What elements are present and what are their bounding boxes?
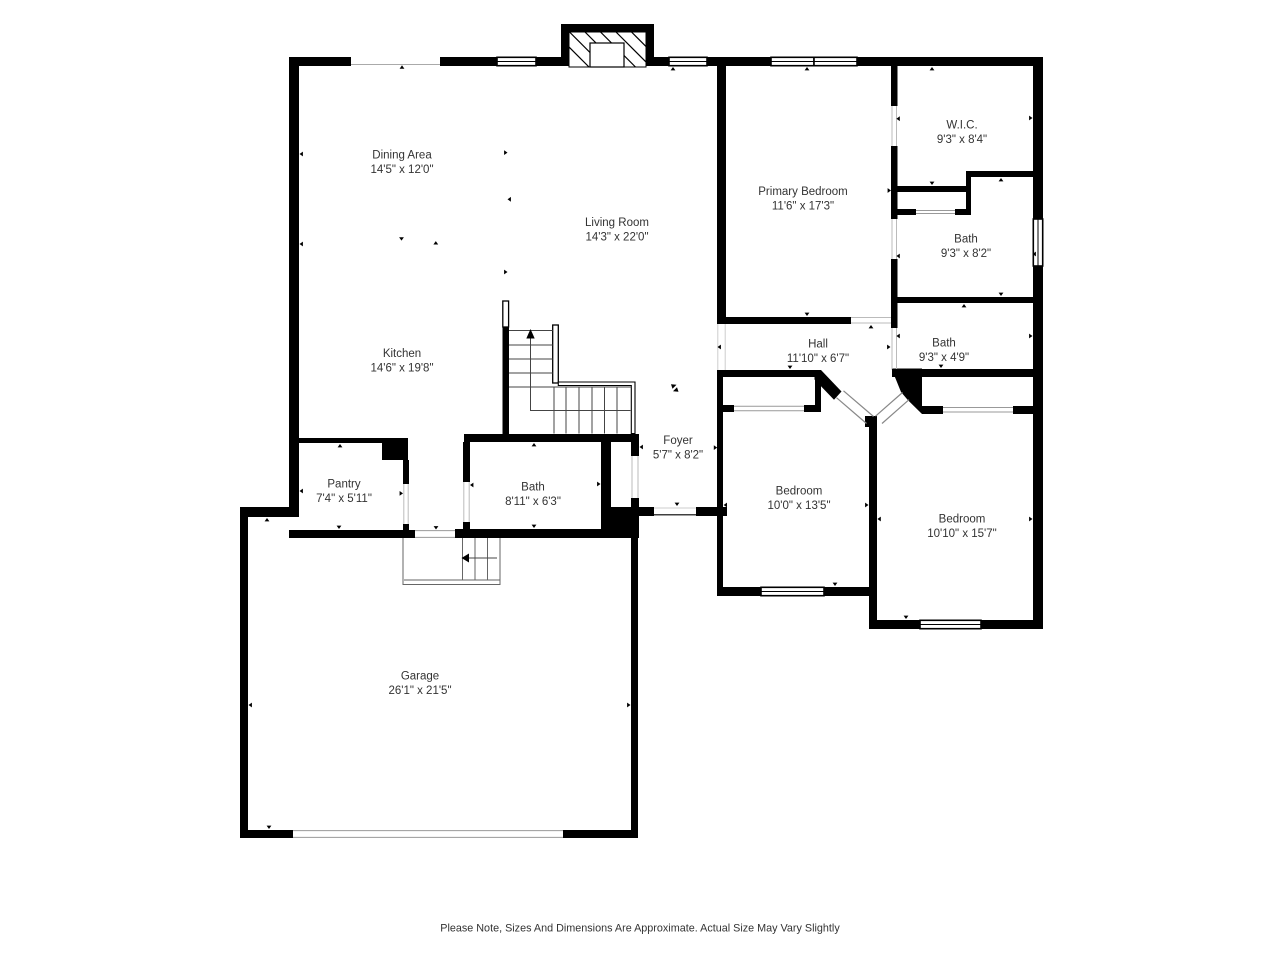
svg-text:14'5" x 12'0": 14'5" x 12'0": [370, 164, 433, 176]
svg-text:9'3" x 8'2": 9'3" x 8'2": [941, 248, 991, 260]
svg-text:9'3" x 4'9": 9'3" x 4'9": [919, 352, 969, 364]
svg-text:8'11" x 6'3": 8'11" x 6'3": [505, 496, 561, 508]
svg-text:W.I.C.: W.I.C.: [946, 120, 977, 132]
svg-text:26'1" x 21'5": 26'1" x 21'5": [388, 685, 451, 697]
svg-text:Dining Area: Dining Area: [372, 150, 432, 162]
svg-text:14'6" x 19'8": 14'6" x 19'8": [370, 363, 433, 375]
svg-text:Bath: Bath: [954, 234, 978, 246]
svg-text:10'0" x 13'5": 10'0" x 13'5": [767, 500, 830, 512]
svg-text:Pantry: Pantry: [327, 479, 360, 491]
svg-text:Please Note, Sizes And Dimensi: Please Note, Sizes And Dimensions Are Ap…: [440, 923, 840, 935]
svg-text:14'3" x 22'0": 14'3" x 22'0": [585, 232, 648, 244]
svg-text:Bedroom: Bedroom: [776, 486, 823, 498]
svg-text:11'6" x 17'3": 11'6" x 17'3": [772, 201, 834, 213]
svg-text:Bedroom: Bedroom: [939, 514, 986, 526]
svg-text:9'3" x 8'4": 9'3" x 8'4": [937, 134, 987, 146]
svg-text:5'7" x 8'2": 5'7" x 8'2": [653, 450, 703, 462]
svg-text:Hall: Hall: [808, 339, 828, 351]
svg-text:Primary Bedroom: Primary Bedroom: [758, 186, 847, 198]
svg-text:Living Room: Living Room: [585, 217, 649, 229]
svg-text:Bath: Bath: [932, 338, 956, 350]
svg-text:7'4" x 5'11": 7'4" x 5'11": [316, 493, 372, 505]
svg-text:Garage: Garage: [401, 671, 439, 683]
svg-text:Foyer: Foyer: [663, 435, 693, 447]
svg-text:11'10" x 6'7": 11'10" x 6'7": [787, 353, 849, 365]
svg-text:10'10" x 15'7": 10'10" x 15'7": [927, 528, 996, 540]
svg-text:Kitchen: Kitchen: [383, 348, 421, 360]
svg-text:Bath: Bath: [521, 482, 545, 494]
